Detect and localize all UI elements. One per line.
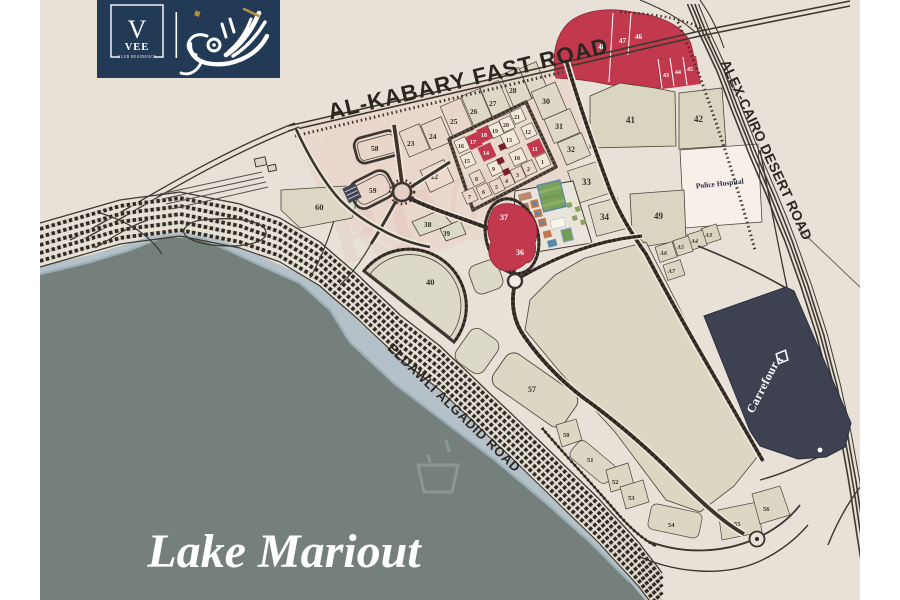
svg-text:32: 32 bbox=[567, 145, 575, 154]
svg-text:5: 5 bbox=[495, 185, 498, 191]
svg-text:20: 20 bbox=[503, 123, 509, 129]
svg-text:18: 18 bbox=[481, 133, 487, 139]
svg-text:59: 59 bbox=[369, 186, 377, 195]
svg-text:44: 44 bbox=[675, 70, 681, 76]
svg-text:16: 16 bbox=[458, 144, 464, 150]
svg-text:1: 1 bbox=[541, 160, 544, 166]
svg-text:17: 17 bbox=[470, 140, 476, 146]
svg-text:25: 25 bbox=[450, 117, 458, 126]
svg-text:60: 60 bbox=[315, 202, 324, 212]
svg-text:21: 21 bbox=[514, 115, 520, 121]
svg-text:VEE: VEE bbox=[125, 42, 150, 53]
svg-text:24: 24 bbox=[429, 132, 437, 141]
svg-text:28: 28 bbox=[509, 86, 517, 95]
svg-text:10: 10 bbox=[514, 156, 520, 162]
svg-text:A7: A7 bbox=[667, 269, 676, 275]
svg-text:38: 38 bbox=[424, 220, 432, 229]
svg-text:2: 2 bbox=[527, 167, 530, 173]
svg-text:52: 52 bbox=[612, 479, 619, 486]
svg-text:A4: A4 bbox=[690, 239, 698, 245]
svg-text:9: 9 bbox=[492, 167, 495, 173]
svg-text:31: 31 bbox=[555, 122, 563, 131]
svg-text:23: 23 bbox=[407, 139, 415, 148]
svg-text:CLUB RESIDENCE: CLUB RESIDENCE bbox=[118, 55, 157, 59]
svg-text:7: 7 bbox=[468, 195, 471, 201]
svg-text:42: 42 bbox=[694, 114, 704, 124]
svg-text:50: 50 bbox=[563, 432, 570, 439]
svg-text:Lake Mariout: Lake Mariout bbox=[146, 525, 422, 578]
svg-text:51: 51 bbox=[587, 457, 594, 464]
svg-text:8: 8 bbox=[475, 177, 478, 183]
svg-text:3: 3 bbox=[516, 173, 519, 179]
svg-text:54: 54 bbox=[668, 522, 675, 529]
svg-text:A6: A6 bbox=[659, 251, 667, 257]
svg-text:V: V bbox=[128, 15, 147, 44]
svg-text:19: 19 bbox=[492, 129, 498, 135]
svg-text:A3: A3 bbox=[704, 233, 712, 239]
svg-text:46: 46 bbox=[635, 33, 643, 41]
svg-text:53: 53 bbox=[628, 495, 635, 502]
svg-text:56: 56 bbox=[763, 506, 770, 513]
svg-text:27: 27 bbox=[489, 99, 497, 108]
svg-text:15: 15 bbox=[464, 159, 470, 165]
svg-text:33: 33 bbox=[582, 177, 592, 187]
svg-text:58: 58 bbox=[371, 144, 379, 153]
svg-text:49: 49 bbox=[654, 211, 664, 221]
svg-text:30: 30 bbox=[542, 97, 550, 106]
svg-text:36: 36 bbox=[516, 248, 524, 257]
svg-text:34: 34 bbox=[600, 212, 610, 222]
svg-text:A5: A5 bbox=[676, 245, 684, 251]
svg-text:37: 37 bbox=[500, 213, 508, 222]
svg-text:13: 13 bbox=[506, 138, 512, 144]
svg-text:12: 12 bbox=[525, 130, 531, 136]
svg-text:40: 40 bbox=[426, 277, 435, 287]
svg-text:57: 57 bbox=[528, 385, 536, 394]
svg-text:14: 14 bbox=[483, 151, 489, 157]
svg-text:45: 45 bbox=[687, 67, 693, 73]
svg-text:11: 11 bbox=[532, 147, 538, 153]
svg-text:39: 39 bbox=[443, 230, 451, 238]
svg-text:26: 26 bbox=[470, 107, 478, 116]
svg-text:6: 6 bbox=[482, 190, 485, 196]
svg-text:41: 41 bbox=[626, 115, 636, 125]
svg-text:4: 4 bbox=[505, 179, 508, 185]
svg-text:47: 47 bbox=[619, 37, 627, 45]
svg-text:43: 43 bbox=[663, 73, 669, 79]
